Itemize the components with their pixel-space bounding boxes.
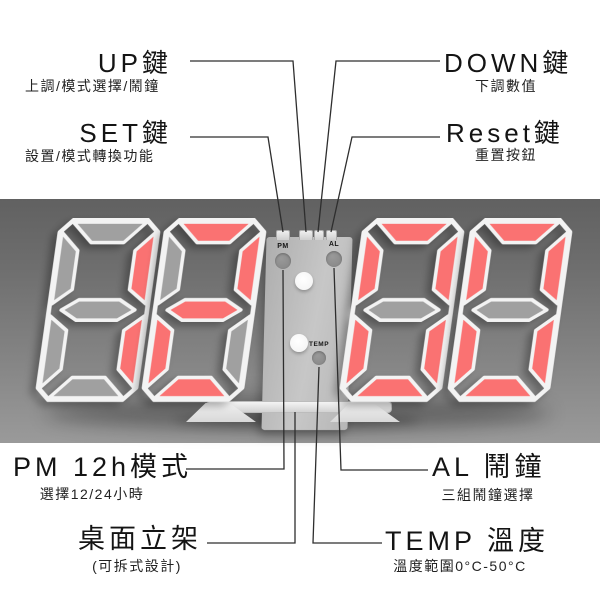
temp-subtitle: 溫度範圍0°C-50°C xyxy=(385,559,535,574)
set-key-title: SET鍵 xyxy=(20,119,172,148)
product-infographic: PM AL TEMP xyxy=(0,0,600,600)
al-indicator-label: AL xyxy=(325,241,343,248)
pm-mode-subtitle: 選擇12/24小時 xyxy=(13,487,171,502)
colon-dot-top xyxy=(295,272,313,290)
up-key-subtitle: 上調/模式選擇/鬧鐘 xyxy=(25,79,160,94)
reset-key-subtitle: 重置按鈕 xyxy=(443,148,569,163)
pm-indicator-label: PM xyxy=(274,243,292,250)
reset-key-title: Reset鍵 xyxy=(446,119,564,148)
al-indicator-led xyxy=(326,251,342,267)
pm-mode-title: PM 12h模式 xyxy=(13,453,192,483)
al-alarm-subtitle: 三組鬧鐘選擇 xyxy=(432,488,544,503)
temp-indicator-label: TEMP xyxy=(306,341,332,348)
stand-title: 桌面立架 xyxy=(78,525,202,555)
reset-button xyxy=(326,230,337,240)
up-key-title: UP鍵 xyxy=(20,49,172,78)
up-button xyxy=(299,230,313,240)
set-button xyxy=(276,230,290,240)
temp-title: TEMP 溫度 xyxy=(385,527,549,557)
stand-subtitle: (可拆式設計) xyxy=(78,559,196,574)
down-button xyxy=(314,230,324,240)
temp-indicator-led xyxy=(312,351,326,365)
set-key-subtitle: 設置/模式轉換功能 xyxy=(25,149,154,164)
down-key-title: DOWN鍵 xyxy=(444,49,572,78)
down-key-subtitle: 下調數值 xyxy=(443,79,569,94)
al-alarm-title: AL 鬧鐘 xyxy=(432,453,546,483)
pm-indicator-led xyxy=(275,253,291,269)
